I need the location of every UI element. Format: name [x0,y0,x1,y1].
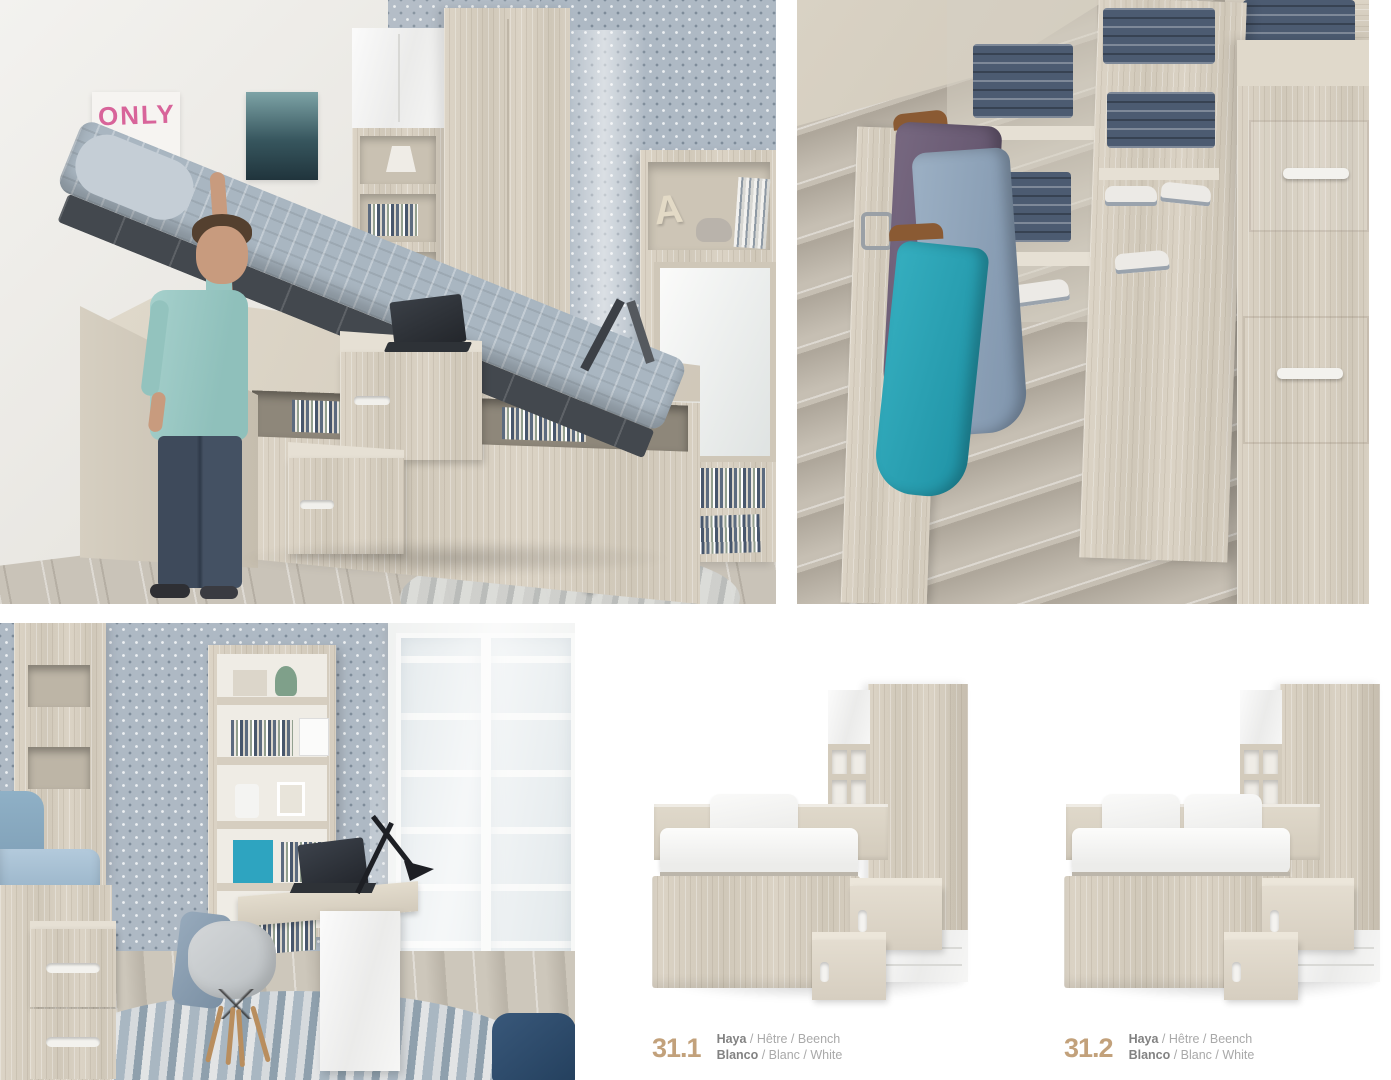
boy-shoe [150,584,190,598]
shelf-board [217,821,327,829]
pullout-shelf-unit [1079,0,1246,562]
finish-wood-primary: Haya [1129,1032,1159,1046]
product-finish-lines: Haya / Hêtre / Beench Blanco / Blanc / W… [717,1032,843,1063]
cubby [1263,780,1278,804]
finish-color-rest: / Blanc / White [758,1048,842,1062]
laptop-keyboard [384,342,472,352]
folded-jeans-stack [973,44,1073,118]
finish-color-primary: Blanco [1129,1048,1171,1062]
art-card [299,718,329,756]
shelf-board [1099,168,1219,180]
cubby [851,750,866,774]
clothes-hanger [889,223,944,242]
tower-cubby [28,747,90,789]
boy-jeans [158,436,242,588]
cubby [832,780,847,804]
metal-hook [861,212,893,250]
table-lamp [386,146,416,172]
white-wall-cabinet [352,28,444,128]
step-handle [1232,962,1241,982]
finish-line-color: Blanco / Blanc / White [717,1048,843,1064]
drawer-unit-top [1237,40,1369,86]
storage-box [233,670,267,696]
drawer-seam [874,964,962,966]
boy-shoe [200,586,238,599]
finish-wood-rest: / Hêtre / Beench [746,1032,840,1046]
drawer-handle [1283,168,1349,179]
cubby-white-door [828,690,870,744]
product-code: 31.2 [1064,1033,1113,1064]
cd-stack [734,177,771,249]
decor-letter: A [652,187,685,235]
cabinet-seam [398,34,400,122]
folded-jeans-stack [1107,92,1215,148]
photo-frame [277,782,305,816]
finish-color-rest: / Blanc / White [1170,1048,1254,1062]
product-caption-31-1: 31.1 Haya / Hêtre / Beench Blanco / Blan… [652,1026,842,1070]
white-mattress [1072,828,1290,874]
finish-wood-primary: Haya [717,1032,747,1046]
book-row [368,204,418,236]
product-figure-31-2 [1064,678,1391,1008]
step-handle [354,396,390,405]
sneaker [1105,186,1157,206]
step-handle [858,910,867,932]
shelf-board [217,757,327,765]
shelf-board [217,697,327,705]
drawer-seam [1286,964,1374,966]
plant [275,666,297,696]
drawer-front [1243,316,1369,444]
step-handle [300,500,334,509]
photo-desk-area [0,623,575,1080]
finish-color-primary: Blanco [717,1048,759,1062]
finish-line-color: Blanco / Blanc / White [1129,1048,1255,1064]
shelf-cubby [360,136,436,184]
drawer-handle [46,1037,100,1047]
finish-wood-rest: / Hêtre / Beench [1158,1032,1252,1046]
step-handle [820,962,829,982]
product-figure-31-1 [652,678,982,1008]
chair-shell [188,921,276,999]
cubby-white-door [1240,690,1282,744]
product-finish-lines: Haya / Hêtre / Beench Blanco / Blanc / W… [1129,1032,1255,1063]
book-row [231,720,293,756]
floor-shadow [240,540,670,576]
tower-cubby [28,665,90,707]
drawer-handle [1277,368,1343,379]
cubby [832,750,847,774]
desk-support-panel [320,911,400,1071]
cubby [851,780,866,804]
product-caption-31-2: 31.2 Haya / Hêtre / Beench Blanco / Blan… [1064,1026,1254,1070]
catalog-page: ONLY A [0,0,1391,1080]
cubby [1244,750,1259,774]
product-code: 31.1 [652,1033,701,1064]
elephant-figurine [696,218,732,242]
blue-backpack [492,1013,575,1080]
step-handle [1270,910,1279,932]
boy-head [196,226,248,284]
step-upper [340,352,482,460]
canister [235,784,259,818]
poster-teal [246,92,318,180]
white-mattress [660,828,858,874]
photo-liftbed-room: ONLY A [0,0,776,604]
folded-jeans-stack [1103,8,1215,64]
photo-underbed-storage [797,0,1369,604]
drawer-handle [46,963,100,973]
finish-line-wood: Haya / Hêtre / Beench [717,1032,843,1048]
cubby [1263,750,1278,774]
finish-line-wood: Haya / Hêtre / Beench [1129,1032,1255,1048]
teal-print [233,840,273,884]
unit-top-shelf: A [648,162,770,250]
